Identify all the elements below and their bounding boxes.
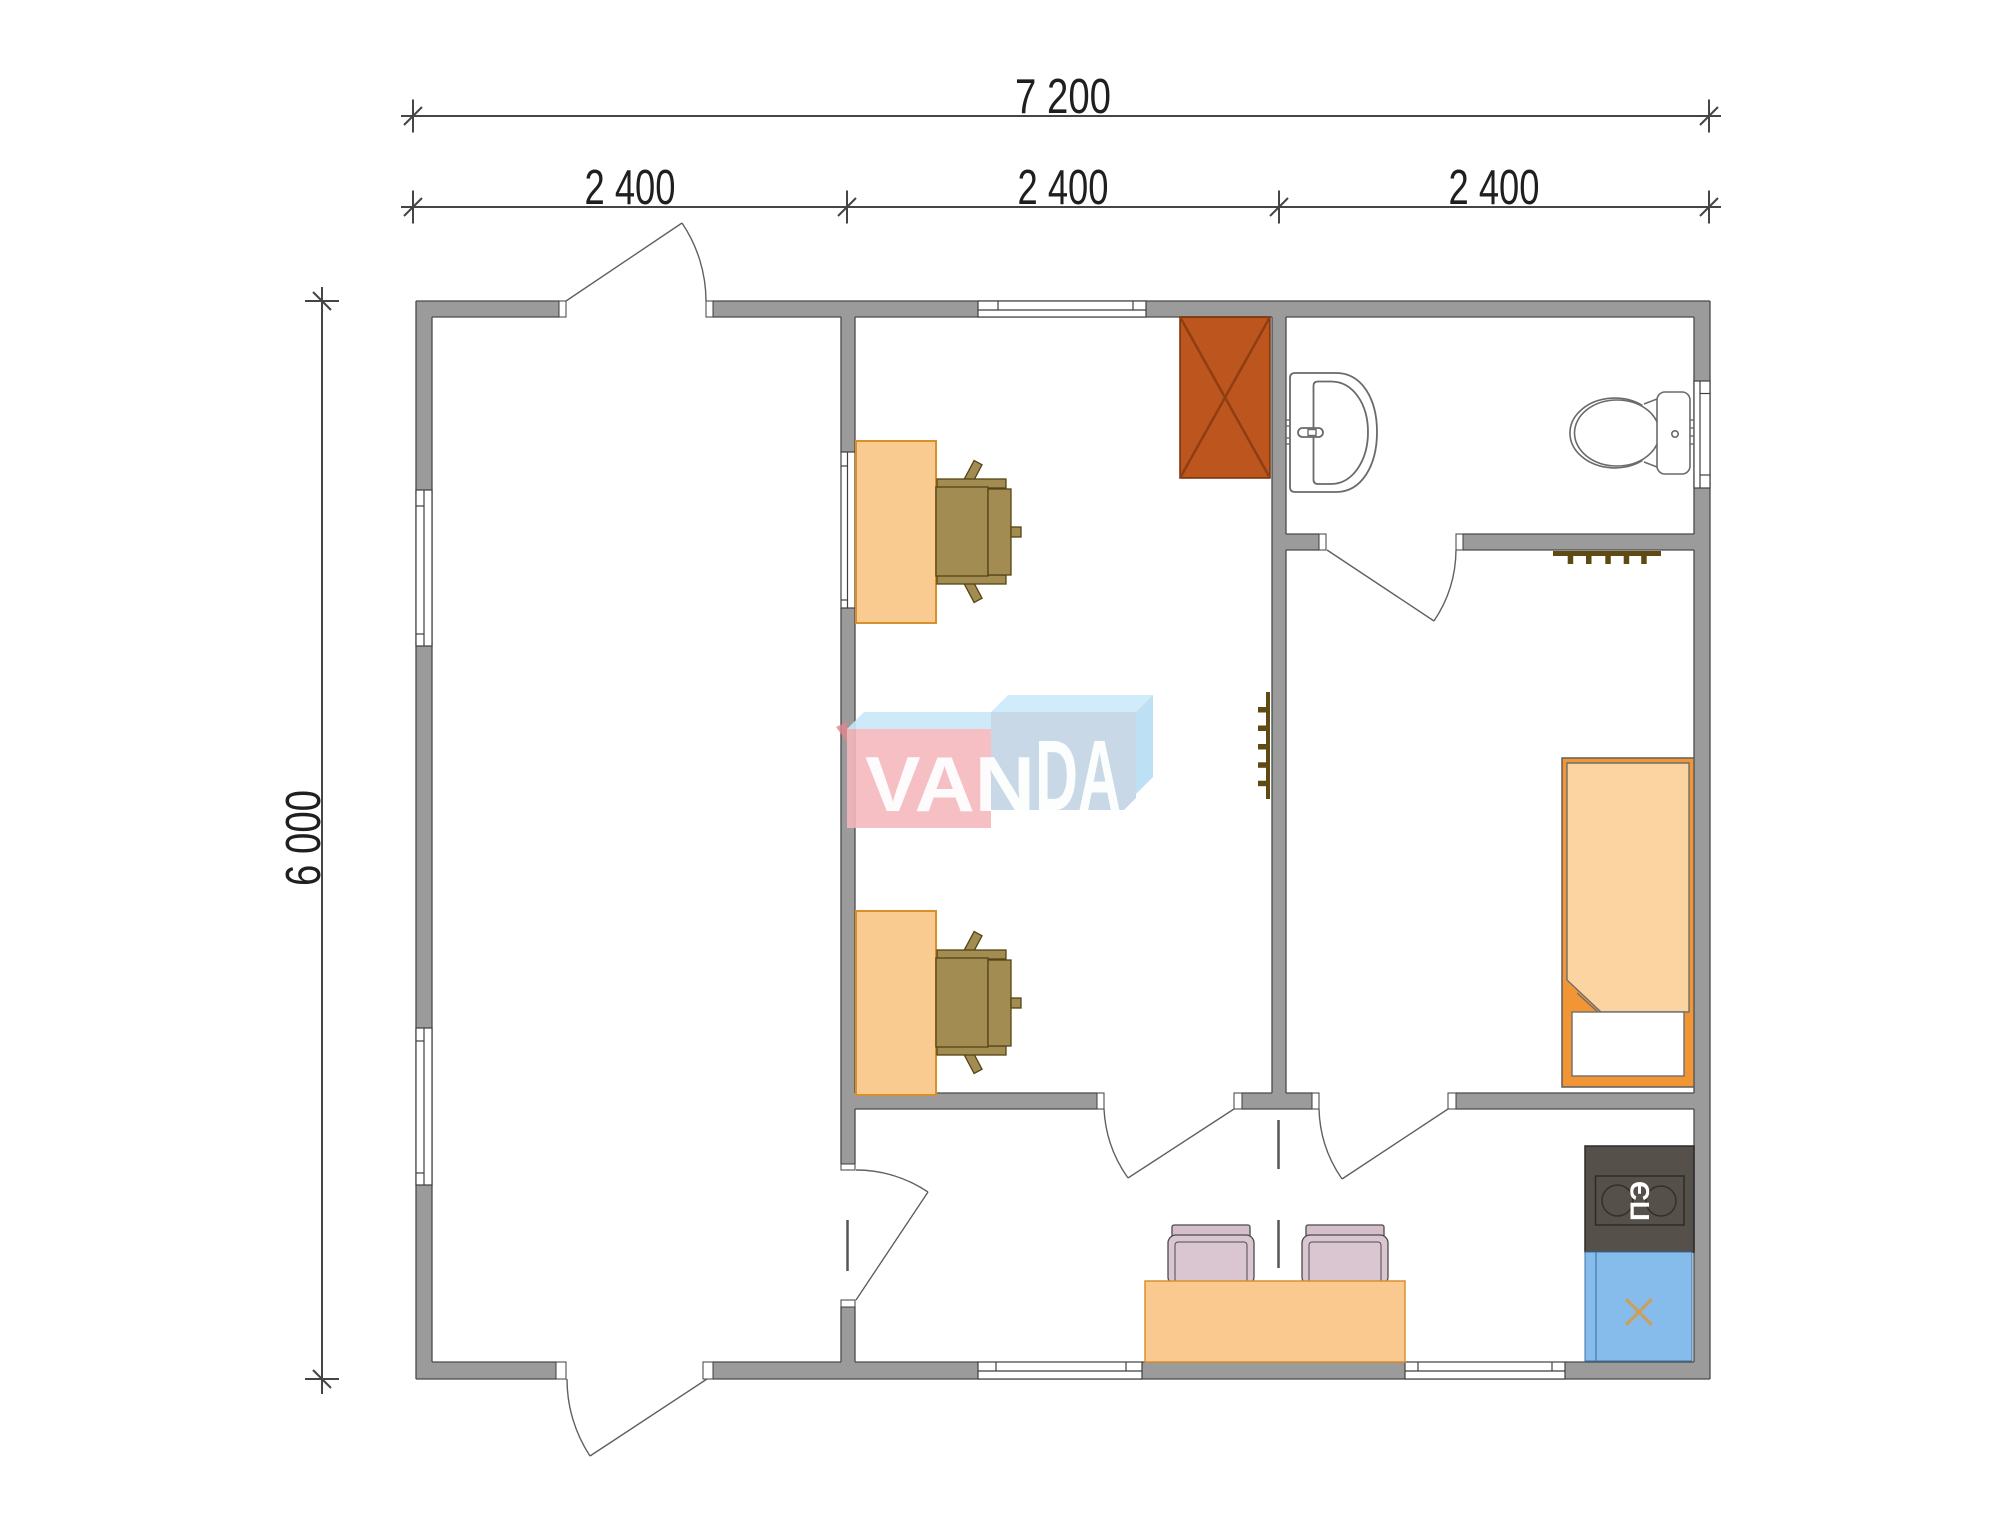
svg-text:2 400: 2 400	[1018, 161, 1109, 215]
svg-text:VAN: VAN	[865, 740, 1035, 828]
svg-text:2 400: 2 400	[1449, 161, 1540, 215]
svg-text:ПЭ: ПЭ	[1625, 1181, 1655, 1221]
svg-text:7 200: 7 200	[1015, 70, 1111, 124]
svg-text:DA: DA	[1035, 720, 1121, 832]
svg-text:6 000: 6 000	[277, 790, 331, 886]
svg-text:2 400: 2 400	[585, 161, 676, 215]
